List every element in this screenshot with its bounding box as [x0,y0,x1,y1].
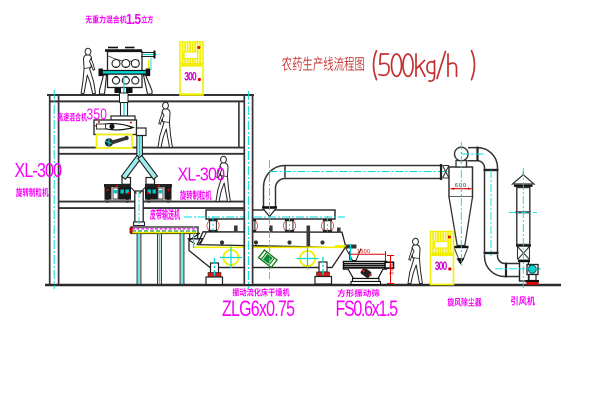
svg-text:1.5: 1.5 [126,11,141,27]
svg-text:600: 600 [455,183,466,189]
svg-text:XL-300: XL-300 [178,163,226,184]
svg-text:350: 350 [87,105,108,123]
svg-text:XL-300: XL-300 [15,158,62,181]
svg-text:1500: 1500 [357,249,370,255]
svg-text:345: 345 [390,264,396,275]
svg-text:ZLG6x0.75: ZLG6x0.75 [222,298,295,322]
svg-text:FS0.6x1.5: FS0.6x1.5 [336,298,399,322]
